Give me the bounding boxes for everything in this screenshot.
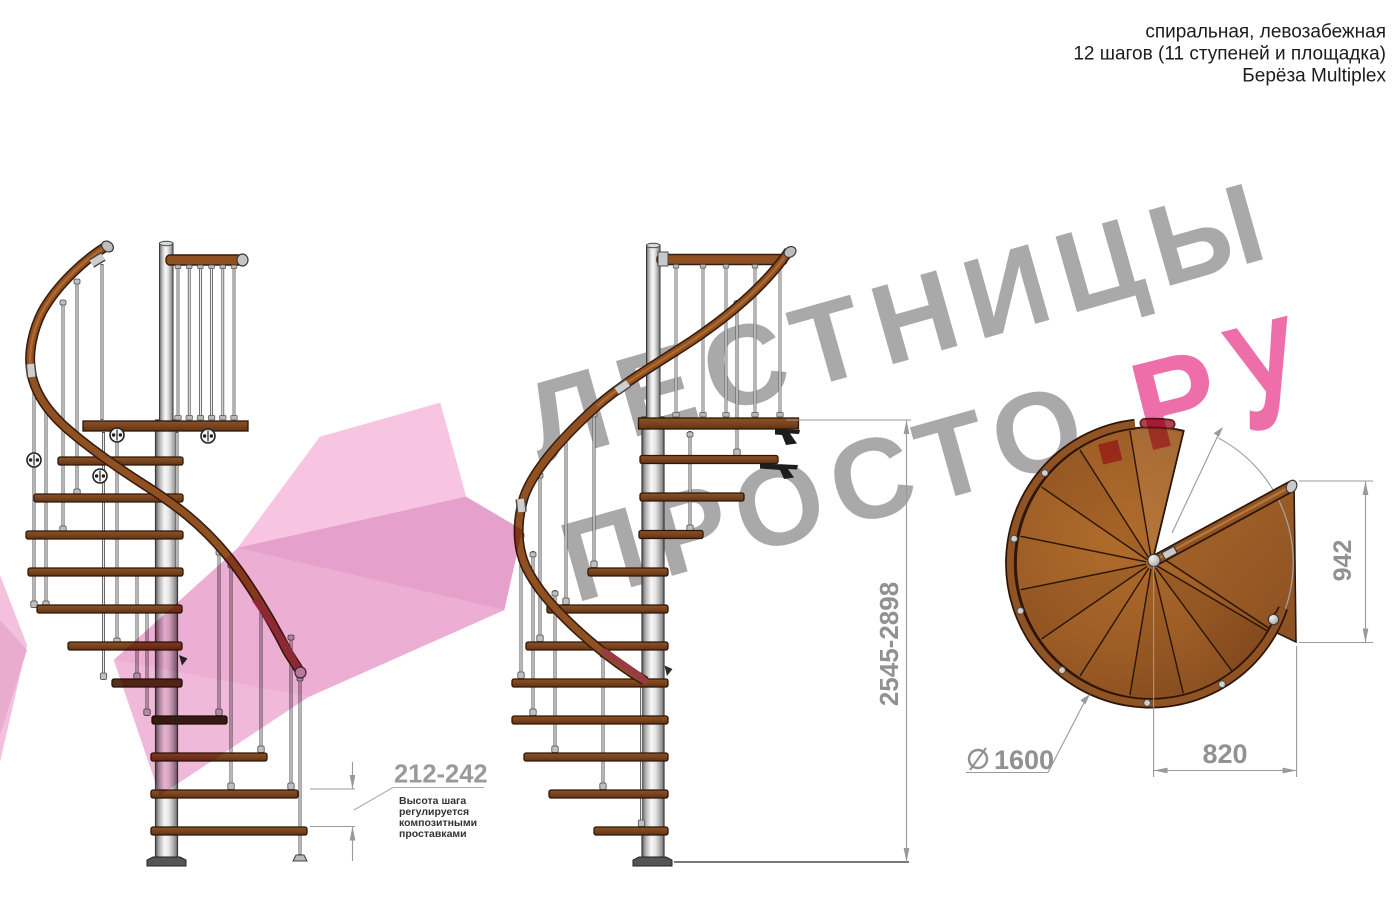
svg-text:спиральная, левозабежная: спиральная, левозабежная: [1145, 22, 1386, 43]
svg-text:212-242: 212-242: [394, 761, 488, 789]
svg-text:1600: 1600: [994, 745, 1054, 775]
svg-text:Берёза Multiplex: Берёза Multiplex: [1242, 65, 1386, 86]
svg-text:820: 820: [1202, 739, 1247, 769]
svg-text:проставками: проставками: [399, 828, 467, 840]
svg-text:12 шагов (11 ступеней и площад: 12 шагов (11 ступеней и площадка): [1073, 43, 1386, 64]
svg-text:2545-2898: 2545-2898: [874, 582, 904, 706]
svg-text:942: 942: [1329, 540, 1357, 582]
